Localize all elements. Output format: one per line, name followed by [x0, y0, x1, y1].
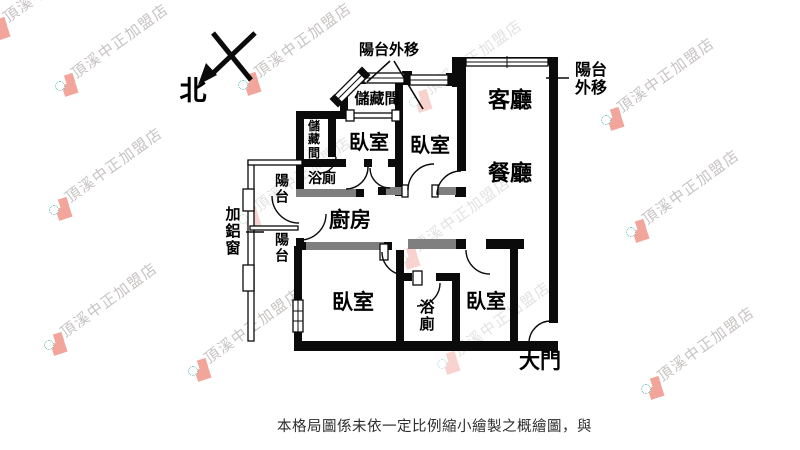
storage-room-top-label: 儲藏間 [354, 92, 399, 109]
annotation-lines [246, 61, 569, 232]
alum-window-label: 加 鋁 窗 [225, 207, 240, 257]
balcony-out-right-label: 陽台 外移 [575, 62, 607, 98]
bathroom-1-label: 浴廁 [308, 171, 336, 187]
floorplan-screenshot: 頂溪中正加盟店頂溪中正加盟店頂溪中正加盟店頂溪中正加盟店頂溪中正加盟店頂溪中正加… [0, 0, 800, 450]
bedroom-1-label: 臥室 [349, 132, 389, 154]
disclaimer-line-1: 本格局圖係未依一定比例縮小繪製之概繪圖，與 [277, 417, 592, 439]
balcony-out-top-label: 陽台外移 [359, 43, 419, 60]
disclaimer-text: 本格局圖係未依一定比例縮小繪製之概繪圖，與 實況仍有差距，其方位、格局、形狀等，… [277, 374, 592, 450]
main-door-label: 大門 [519, 350, 561, 374]
north-label: 北 [180, 76, 207, 106]
bedroom-4-label: 臥室 [466, 291, 506, 313]
storage-room-small-label: 儲 藏 間 [308, 120, 320, 160]
balcony-lower-label: 陽 台 [275, 232, 289, 263]
bedroom-3-label: 臥室 [332, 291, 374, 315]
balcony-upper-label: 陽 台 [275, 173, 289, 204]
bedroom-2-label: 臥室 [410, 135, 450, 157]
living-room-label: 客廳 [488, 89, 532, 114]
north-arrow-icon [198, 33, 255, 85]
bathroom-2-label: 浴 廁 [419, 300, 434, 334]
kitchen-label: 廚房 [329, 209, 371, 233]
dining-room-label: 餐廳 [488, 162, 532, 187]
